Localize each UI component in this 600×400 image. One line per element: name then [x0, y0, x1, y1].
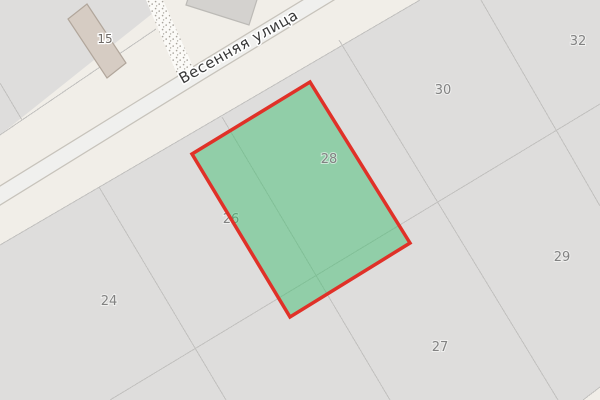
- parcel-label-24: 24: [101, 294, 118, 309]
- parcel-label-30: 30: [435, 83, 452, 98]
- parcel-label-29: 29: [554, 250, 571, 265]
- parcel-label-32: 32: [570, 34, 587, 49]
- parcel-label-28: 28: [321, 152, 338, 167]
- map-svg: 15 24 26 27 29 30 32 28 Весенняя улица: [0, 0, 600, 400]
- parcel-label-27: 27: [432, 340, 449, 355]
- map-canvas[interactable]: 15 24 26 27 29 30 32 28 Весенняя улица: [0, 0, 600, 400]
- building-label-15: 15: [97, 32, 112, 46]
